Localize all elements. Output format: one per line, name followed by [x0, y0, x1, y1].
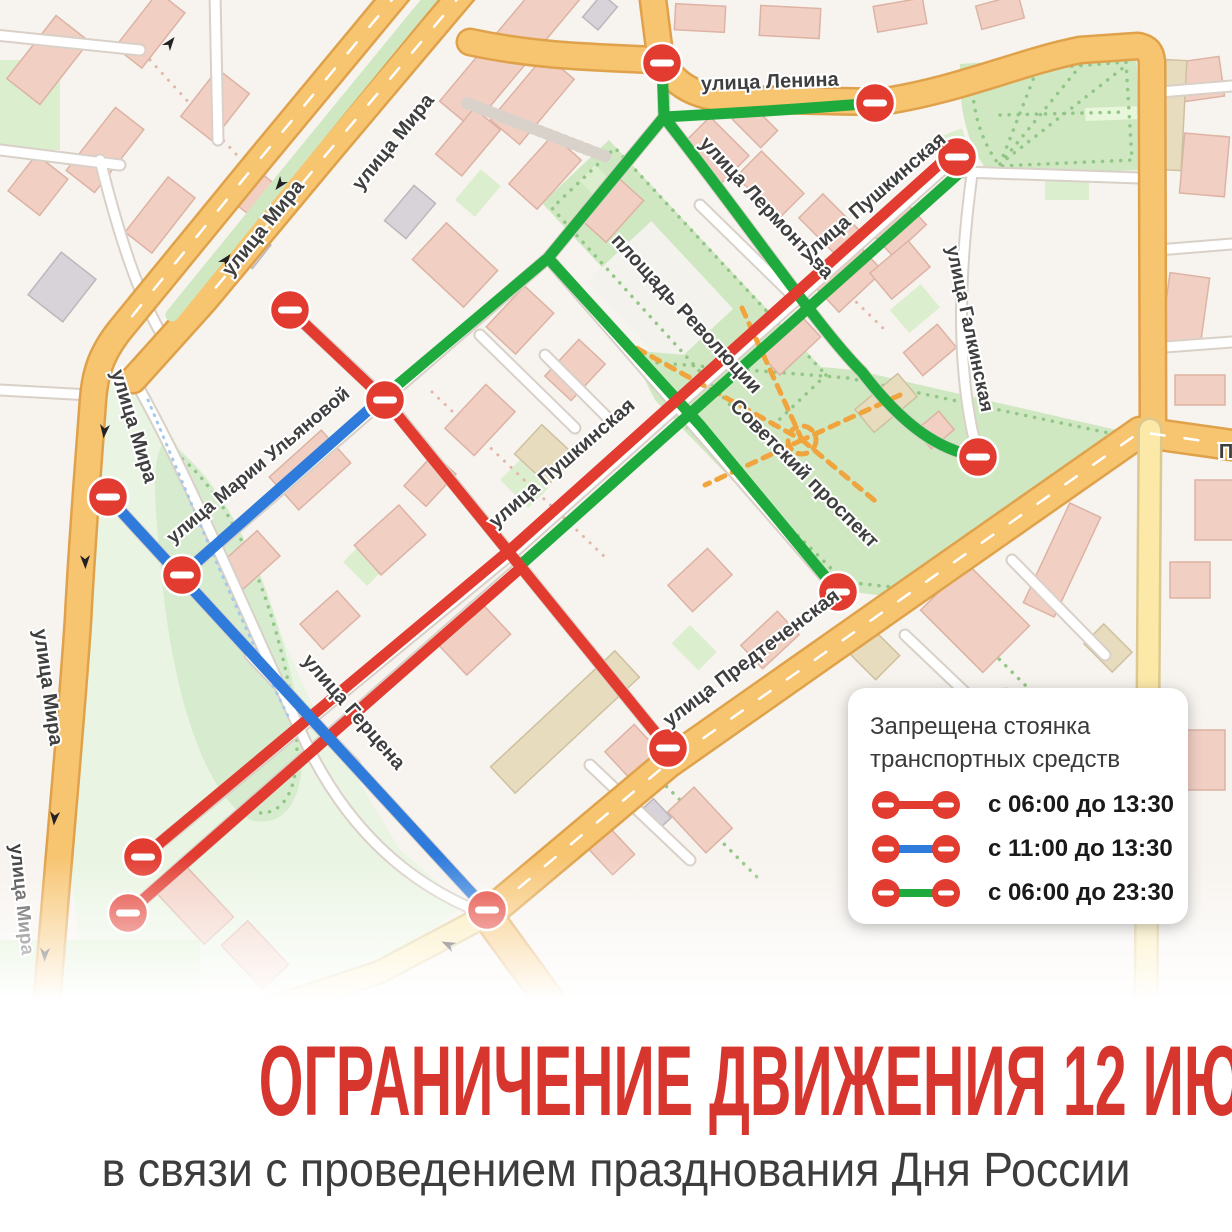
no-entry-icon — [648, 728, 688, 768]
legend-title: Запрещена стоянка транспортных средств — [870, 710, 1164, 776]
no-entry-icon — [365, 380, 405, 420]
legend-time-green: с 06:00 до 23:30 — [988, 879, 1174, 907]
legend-row-blue: с 11:00 до 13:30 — [870, 834, 1164, 864]
no-entry-icon — [855, 83, 895, 123]
no-entry-icon — [642, 43, 682, 83]
legend-title-line2: транспортных средств — [870, 743, 1164, 776]
legend-time-red: с 06:00 до 13:30 — [988, 791, 1174, 819]
banner-subtitle: в связи с проведением празднования Дня Р… — [43, 1143, 1189, 1198]
legend-title-line1: Запрещена стоянка — [870, 710, 1164, 743]
banner-title: ОГРАНИЧЕНИЕ ДВИЖЕНИЯ 12 ИЮНЯ — [259, 1030, 974, 1133]
no-entry-icon — [270, 290, 310, 330]
street-label: П — [1219, 441, 1232, 463]
no-entry-icon — [88, 477, 128, 517]
legend-row-red: с 06:00 до 13:30 — [870, 790, 1164, 820]
legend-card: Запрещена стоянка транспортных средств с… — [848, 688, 1188, 924]
no-entry-dumbbell-icon — [870, 878, 962, 908]
no-entry-dumbbell-icon — [870, 834, 962, 864]
no-entry-icon — [958, 437, 998, 477]
legend-time-blue: с 11:00 до 13:30 — [988, 835, 1173, 863]
no-entry-dumbbell-icon — [870, 790, 962, 820]
no-entry-icon — [162, 555, 202, 595]
banner: ОГРАНИЧЕНИЕ ДВИЖЕНИЯ 12 ИЮНЯ в связи с п… — [0, 1012, 1232, 1232]
legend-row-green: с 06:00 до 23:30 — [870, 878, 1164, 908]
